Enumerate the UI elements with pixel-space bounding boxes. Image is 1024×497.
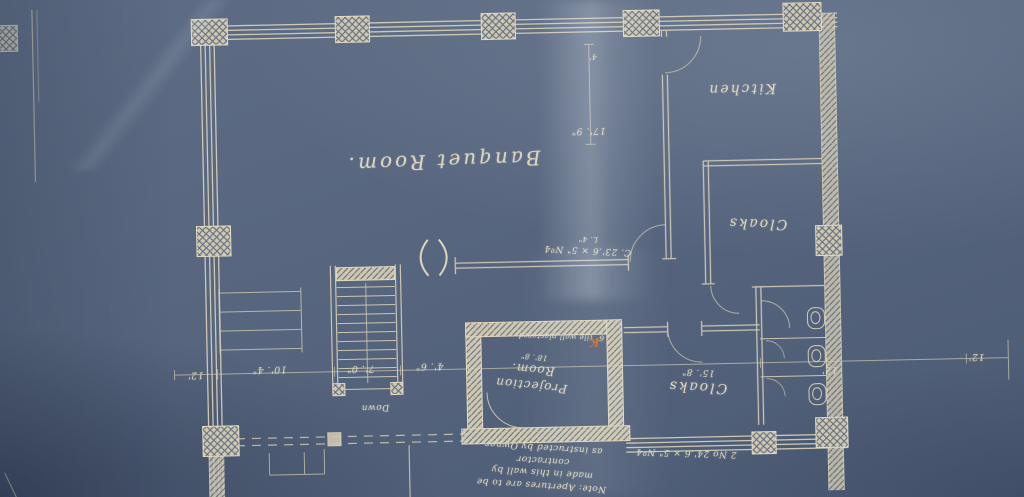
stair-landing-hatch	[336, 266, 394, 280]
aperture-note: Note: Apertures are to be made in this w…	[463, 435, 622, 496]
dim-4-6: 4'. 6"	[408, 359, 450, 372]
beam-node	[328, 433, 341, 446]
stair-newel	[391, 382, 403, 394]
cloaks-lower-label: Cloaks 15'. 8"	[647, 364, 748, 398]
left-wall-hatch	[209, 454, 225, 497]
secondary-steps	[219, 287, 302, 354]
wall-note-mark: K	[587, 334, 601, 349]
dim-12-right: 12'	[812, 363, 846, 376]
opening-symbol	[420, 239, 447, 276]
dim-4-top: 4'	[584, 52, 602, 62]
main-stairs	[330, 264, 403, 395]
blueprint-photo: Banquet Room. Kitchen Cloaks Cloaks 15'.…	[0, 0, 1024, 497]
stair-newel	[333, 384, 345, 396]
wc-fixtures	[807, 307, 826, 404]
floor-plan-drawing	[0, 0, 1024, 497]
sheet-edge-marks	[0, 10, 47, 497]
kitchen-label: Kitchen	[686, 78, 796, 98]
corner-pier-adjacent	[0, 25, 18, 51]
dim-10-4: 10'. 4"	[245, 363, 293, 376]
cloaks-upper-label: Cloaks	[709, 212, 806, 233]
dim-12-far-right: 12'	[958, 350, 994, 363]
floor-plan: Banquet Room. Kitchen Cloaks Cloaks 15'.…	[0, 0, 1024, 497]
dim-7-0: 7'. 0"	[338, 362, 382, 375]
dim-12-left: 12'	[178, 368, 212, 381]
wall-piers	[191, 2, 848, 465]
dim-17-9: 17'. 9"	[563, 124, 613, 137]
down-label: Down	[349, 400, 401, 412]
projection-room-door-arc	[487, 392, 524, 429]
lower-partitions	[236, 434, 473, 497]
